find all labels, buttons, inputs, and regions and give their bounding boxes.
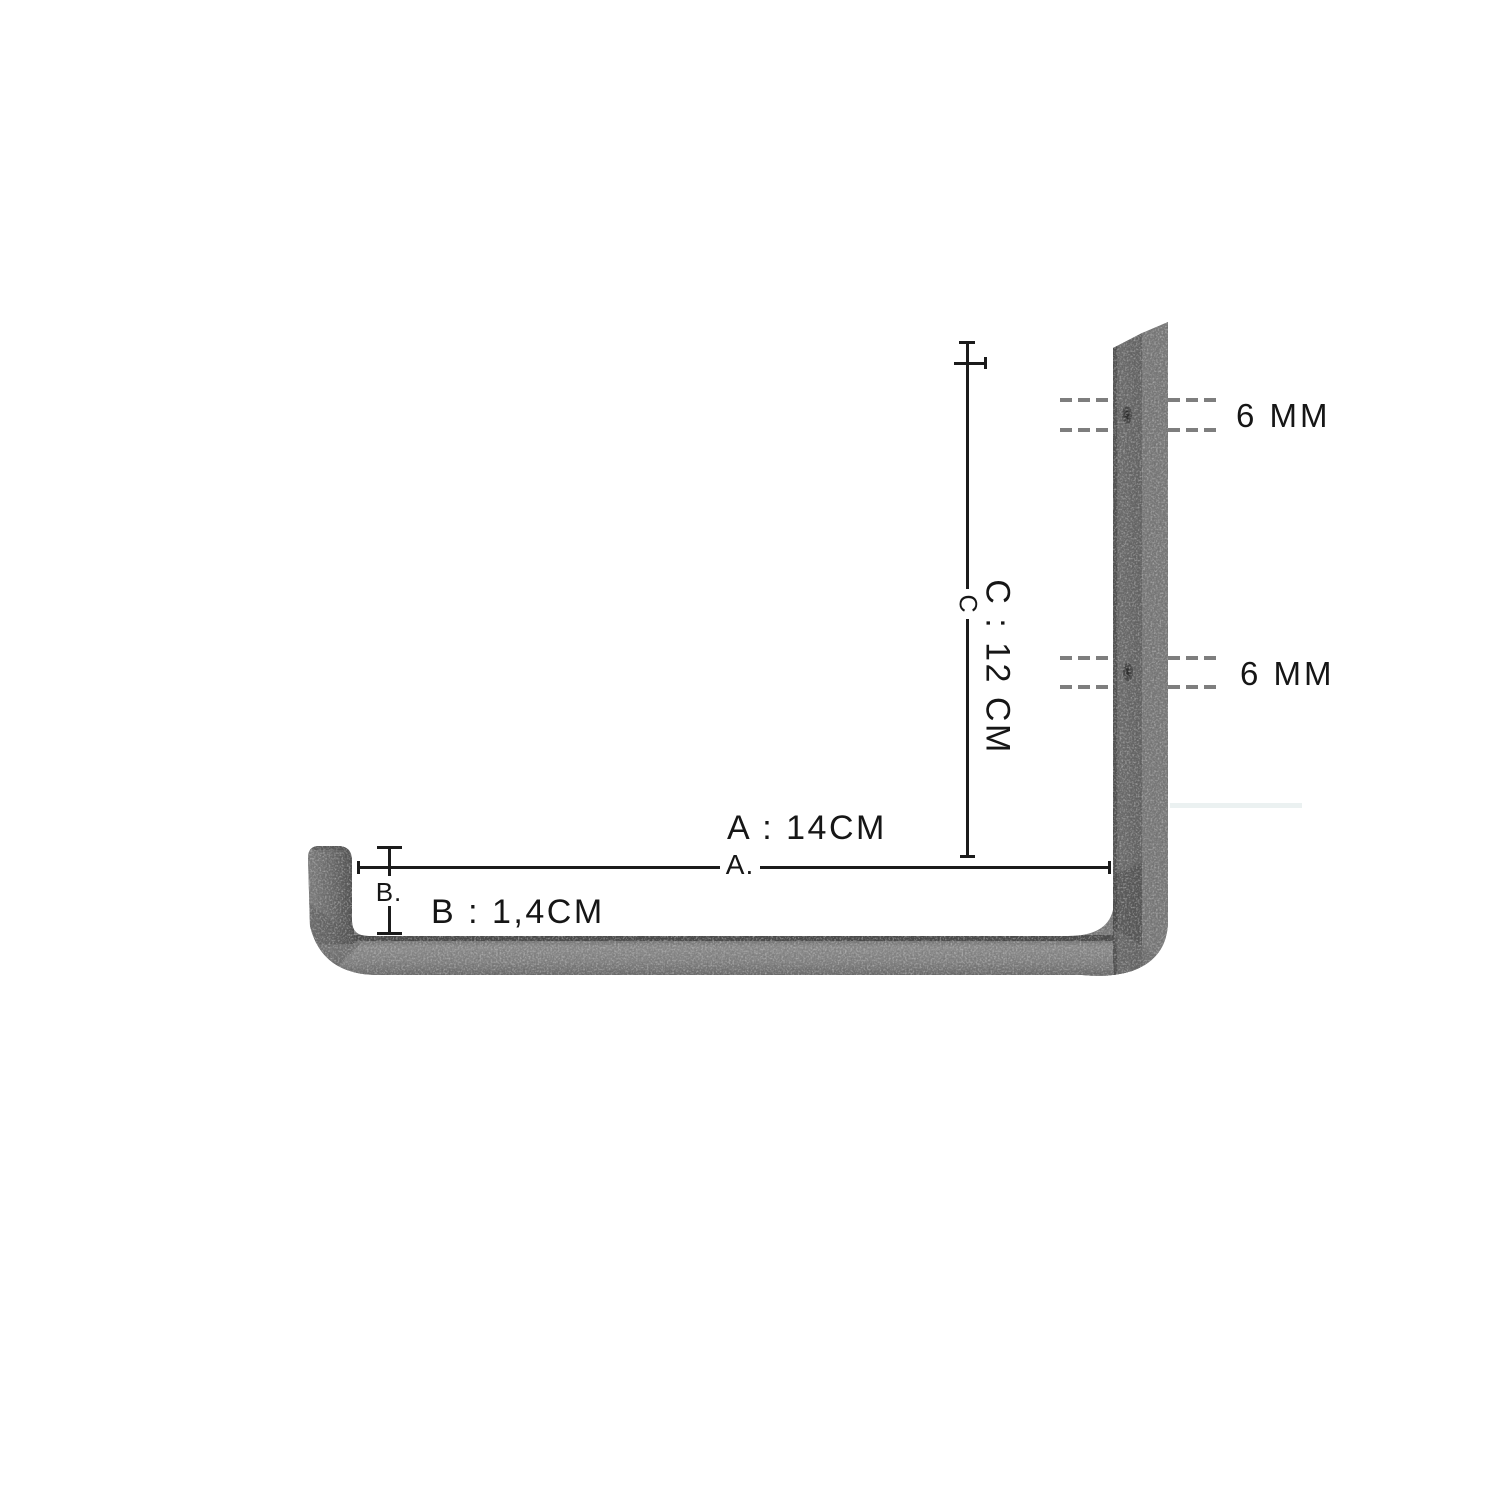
dim-c-line-lower-segment xyxy=(966,619,969,857)
hole-top-dash-lower-right xyxy=(1168,428,1217,432)
hole-bottom-dash-upper-right xyxy=(1168,656,1217,660)
dim-b-line-lower-segment xyxy=(388,906,391,933)
hole-bottom-dash-lower-right xyxy=(1168,685,1217,689)
screw-hole-bottom xyxy=(1123,663,1133,681)
hole-top-value-label: 6 MM xyxy=(1236,397,1331,435)
bracket-illustration xyxy=(0,0,1500,1500)
bracket-bottom-bar xyxy=(296,938,1176,978)
hole-top-dash-upper-right xyxy=(1168,398,1217,402)
hole-top-dash-lower-left xyxy=(1060,428,1108,432)
dim-b-value-label: B : 1,4CM xyxy=(431,893,605,932)
dim-b-tick-bottom xyxy=(377,932,402,935)
hole-top-dash-upper-left xyxy=(1060,398,1108,402)
dim-a-line-label: A. xyxy=(716,849,764,881)
dim-b-line-upper-segment xyxy=(388,849,391,876)
dim-c-cross-line xyxy=(954,362,986,365)
hole-bottom-dash-upper-left xyxy=(1060,656,1108,660)
dim-a-value-label: A : 14CM xyxy=(727,809,887,848)
bracket-post-edge xyxy=(1142,322,1168,978)
dim-a-line-right-segment xyxy=(760,866,1110,869)
screw-hole-top xyxy=(1122,406,1132,424)
dim-c-value-label: C : 12 CM xyxy=(978,579,1017,755)
dim-c-cross-end-cap xyxy=(984,357,987,369)
dim-a-line-left-segment xyxy=(359,866,720,869)
bracket-dimension-diagram: A. A : 14CM B. B : 1,4CM C C : 12 CM 6 M… xyxy=(0,0,1500,1500)
hole-bottom-dash-lower-left xyxy=(1060,685,1108,689)
dim-c-line-upper-segment xyxy=(966,343,969,589)
dim-a-end-cap-left xyxy=(357,861,360,874)
dim-a-end-cap-right xyxy=(1108,861,1111,874)
bracket-bar-top-edge xyxy=(340,935,1116,941)
hole-bottom-value-label: 6 MM xyxy=(1240,655,1335,693)
dim-c-tick-bottom xyxy=(960,855,975,858)
dim-b-line-label: B. xyxy=(370,877,408,908)
shadow-artifact xyxy=(1170,803,1302,808)
